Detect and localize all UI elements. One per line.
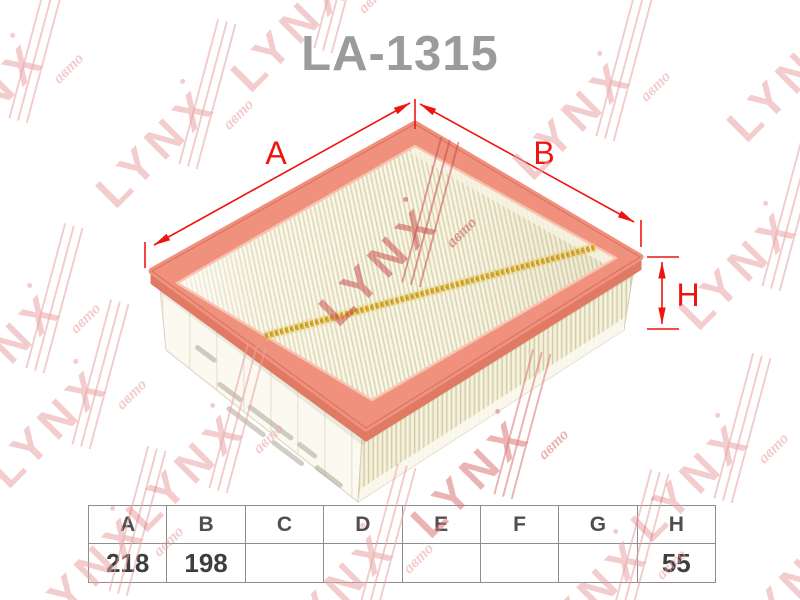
spec-value-cell — [480, 544, 558, 583]
spec-header-cell: C — [245, 506, 323, 544]
spec-value-cell: 55 — [637, 544, 715, 583]
dimensions-table: A B C D E F G H 218 198 55 — [88, 505, 716, 583]
spec-header-cell: B — [167, 506, 245, 544]
spec-header-cell: A — [89, 506, 167, 544]
spec-header-cell: G — [559, 506, 637, 544]
spec-header-cell: H — [637, 506, 715, 544]
spec-value-cell: 198 — [167, 544, 245, 583]
spec-value-cell — [559, 544, 637, 583]
spec-header-cell: E — [402, 506, 480, 544]
product-card: LA-1315 — [0, 0, 800, 600]
spec-value-cell — [245, 544, 323, 583]
spec-value-cell — [402, 544, 480, 583]
table-value-row: 218 198 55 — [89, 544, 716, 583]
spec-header-cell: D — [324, 506, 402, 544]
spec-value-cell — [324, 544, 402, 583]
spec-value-cell: 218 — [89, 544, 167, 583]
table-header-row: A B C D E F G H — [89, 506, 716, 544]
dimension-label-h: H — [676, 277, 699, 313]
dimension-label-b: B — [533, 135, 554, 171]
dimension-label-a: A — [265, 135, 287, 171]
spec-header-cell: F — [480, 506, 558, 544]
